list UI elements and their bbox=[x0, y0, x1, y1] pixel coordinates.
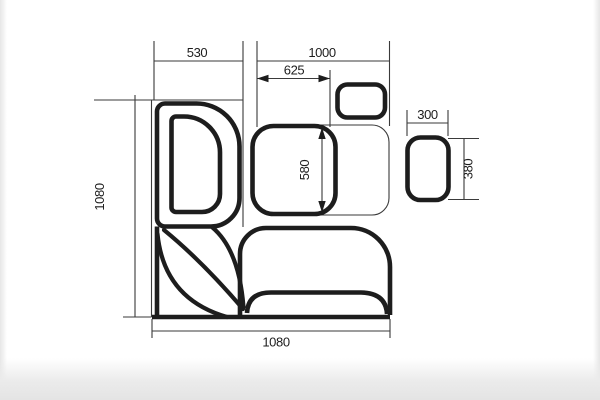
label-1080-left: 1080 bbox=[92, 183, 107, 210]
label-625: 625 bbox=[284, 63, 305, 78]
label-530: 530 bbox=[187, 45, 208, 60]
arrow-625-left-icon bbox=[257, 75, 269, 82]
bottom-bench-outline bbox=[240, 228, 390, 315]
corner-seat-curve-outer bbox=[158, 234, 228, 317]
label-1080-bottom: 1080 bbox=[262, 335, 289, 350]
dimension-diagram: 530 1000 625 580 1080 1080 300 380 bbox=[0, 0, 600, 400]
label-300: 300 bbox=[417, 107, 438, 122]
headrest-cushion bbox=[338, 85, 386, 118]
label-580: 580 bbox=[297, 160, 312, 181]
label-1000: 1000 bbox=[308, 45, 335, 60]
bottom-bench-seat-edge bbox=[247, 293, 387, 315]
furniture-dimension-drawing: 530 1000 625 580 1080 1080 300 380 bbox=[0, 0, 600, 400]
corner-seat-curve-middle bbox=[164, 230, 243, 309]
stool bbox=[408, 138, 449, 201]
arrow-625-right-icon bbox=[319, 75, 331, 82]
table-top bbox=[253, 126, 336, 214]
label-380: 380 bbox=[461, 159, 476, 180]
